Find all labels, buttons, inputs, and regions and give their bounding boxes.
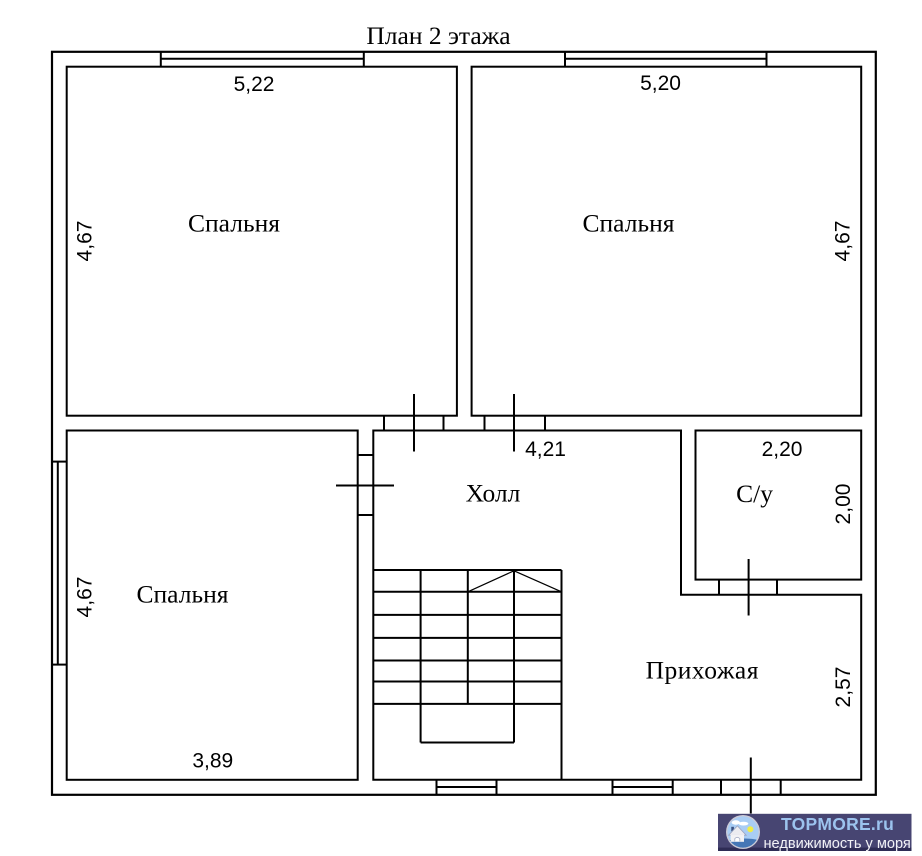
svg-text:3,89: 3,89 <box>192 750 233 773</box>
svg-text:С/у: С/у <box>736 479 773 508</box>
svg-text:Спальня: Спальня <box>583 209 675 238</box>
svg-text:2,00: 2,00 <box>832 484 855 525</box>
svg-text:Холл: Холл <box>466 478 521 507</box>
svg-text:4,21: 4,21 <box>525 438 566 461</box>
svg-text:Спальня: Спальня <box>188 209 280 238</box>
svg-text:недвижимость у моря: недвижимость у моря <box>764 836 911 852</box>
svg-text:5,20: 5,20 <box>640 72 681 95</box>
svg-text:5,22: 5,22 <box>234 73 275 96</box>
svg-text:4,67: 4,67 <box>832 221 855 262</box>
svg-text:Спальня: Спальня <box>137 579 229 608</box>
svg-text:4,67: 4,67 <box>74 221 97 262</box>
svg-text:План 2 этажа: План 2 этажа <box>366 21 510 50</box>
svg-text:TOPMORE.ru: TOPMORE.ru <box>781 814 894 834</box>
svg-text:2,57: 2,57 <box>832 667 855 708</box>
svg-text:Прихожая: Прихожая <box>646 656 759 685</box>
svg-text:4,67: 4,67 <box>74 577 97 618</box>
svg-text:2,20: 2,20 <box>762 438 803 461</box>
